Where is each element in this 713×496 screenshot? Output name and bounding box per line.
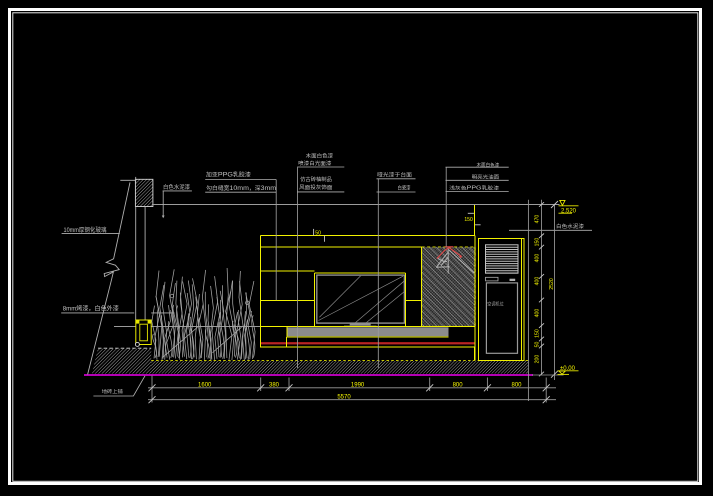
svg-text:浅灰色PPG乳胶漆: 浅灰色PPG乳胶漆 [449, 185, 499, 192]
svg-text:400: 400 [535, 309, 541, 318]
svg-text:1600: 1600 [198, 382, 212, 388]
svg-text:喷漆白光面漆: 喷漆白光面漆 [298, 159, 331, 167]
svg-text:2520: 2520 [549, 278, 555, 290]
svg-text:380: 380 [269, 382, 280, 388]
svg-text:5570: 5570 [337, 394, 351, 400]
svg-text:地砖上铺: 地砖上铺 [102, 388, 123, 395]
svg-text:800: 800 [453, 382, 464, 388]
svg-text:10mm厚钢化玻璃: 10mm厚钢化玻璃 [64, 226, 107, 234]
svg-text:明亮光油面: 明亮光油面 [472, 174, 500, 181]
svg-text:8mm烤漆，白色外漆: 8mm烤漆，白色外漆 [63, 304, 119, 312]
svg-text:仿古砖柚制品: 仿古砖柚制品 [300, 175, 332, 183]
svg-text:50: 50 [535, 342, 541, 348]
svg-text:风面投灰饰面: 风面投灰饰面 [299, 183, 332, 191]
svg-text:50: 50 [315, 230, 321, 236]
svg-text:白色水泥漆: 白色水泥漆 [556, 222, 584, 230]
svg-text:400: 400 [535, 277, 541, 286]
svg-text:470: 470 [535, 215, 541, 224]
svg-text:哑光漆于台面: 哑光漆于台面 [377, 170, 412, 178]
svg-text:200: 200 [535, 355, 541, 364]
svg-text:2.520: 2.520 [561, 209, 577, 215]
svg-text:800: 800 [511, 382, 522, 388]
svg-text:加亚PPG乳胶漆: 加亚PPG乳胶漆 [206, 171, 252, 179]
svg-text:400: 400 [535, 254, 541, 263]
svg-text:白瓷漆: 白瓷漆 [398, 183, 411, 191]
svg-text:空调机位: 空调机位 [487, 300, 504, 307]
svg-text:150: 150 [535, 238, 541, 247]
svg-text:白色水泥漆: 白色水泥漆 [163, 183, 191, 191]
svg-text:勾白缝宽10mm，深3mm: 勾白缝宽10mm，深3mm [206, 184, 276, 192]
svg-text:150: 150 [535, 329, 541, 338]
svg-text:木面白色漆: 木面白色漆 [306, 152, 334, 160]
svg-text:1990: 1990 [351, 382, 365, 388]
svg-text:150: 150 [464, 217, 473, 223]
